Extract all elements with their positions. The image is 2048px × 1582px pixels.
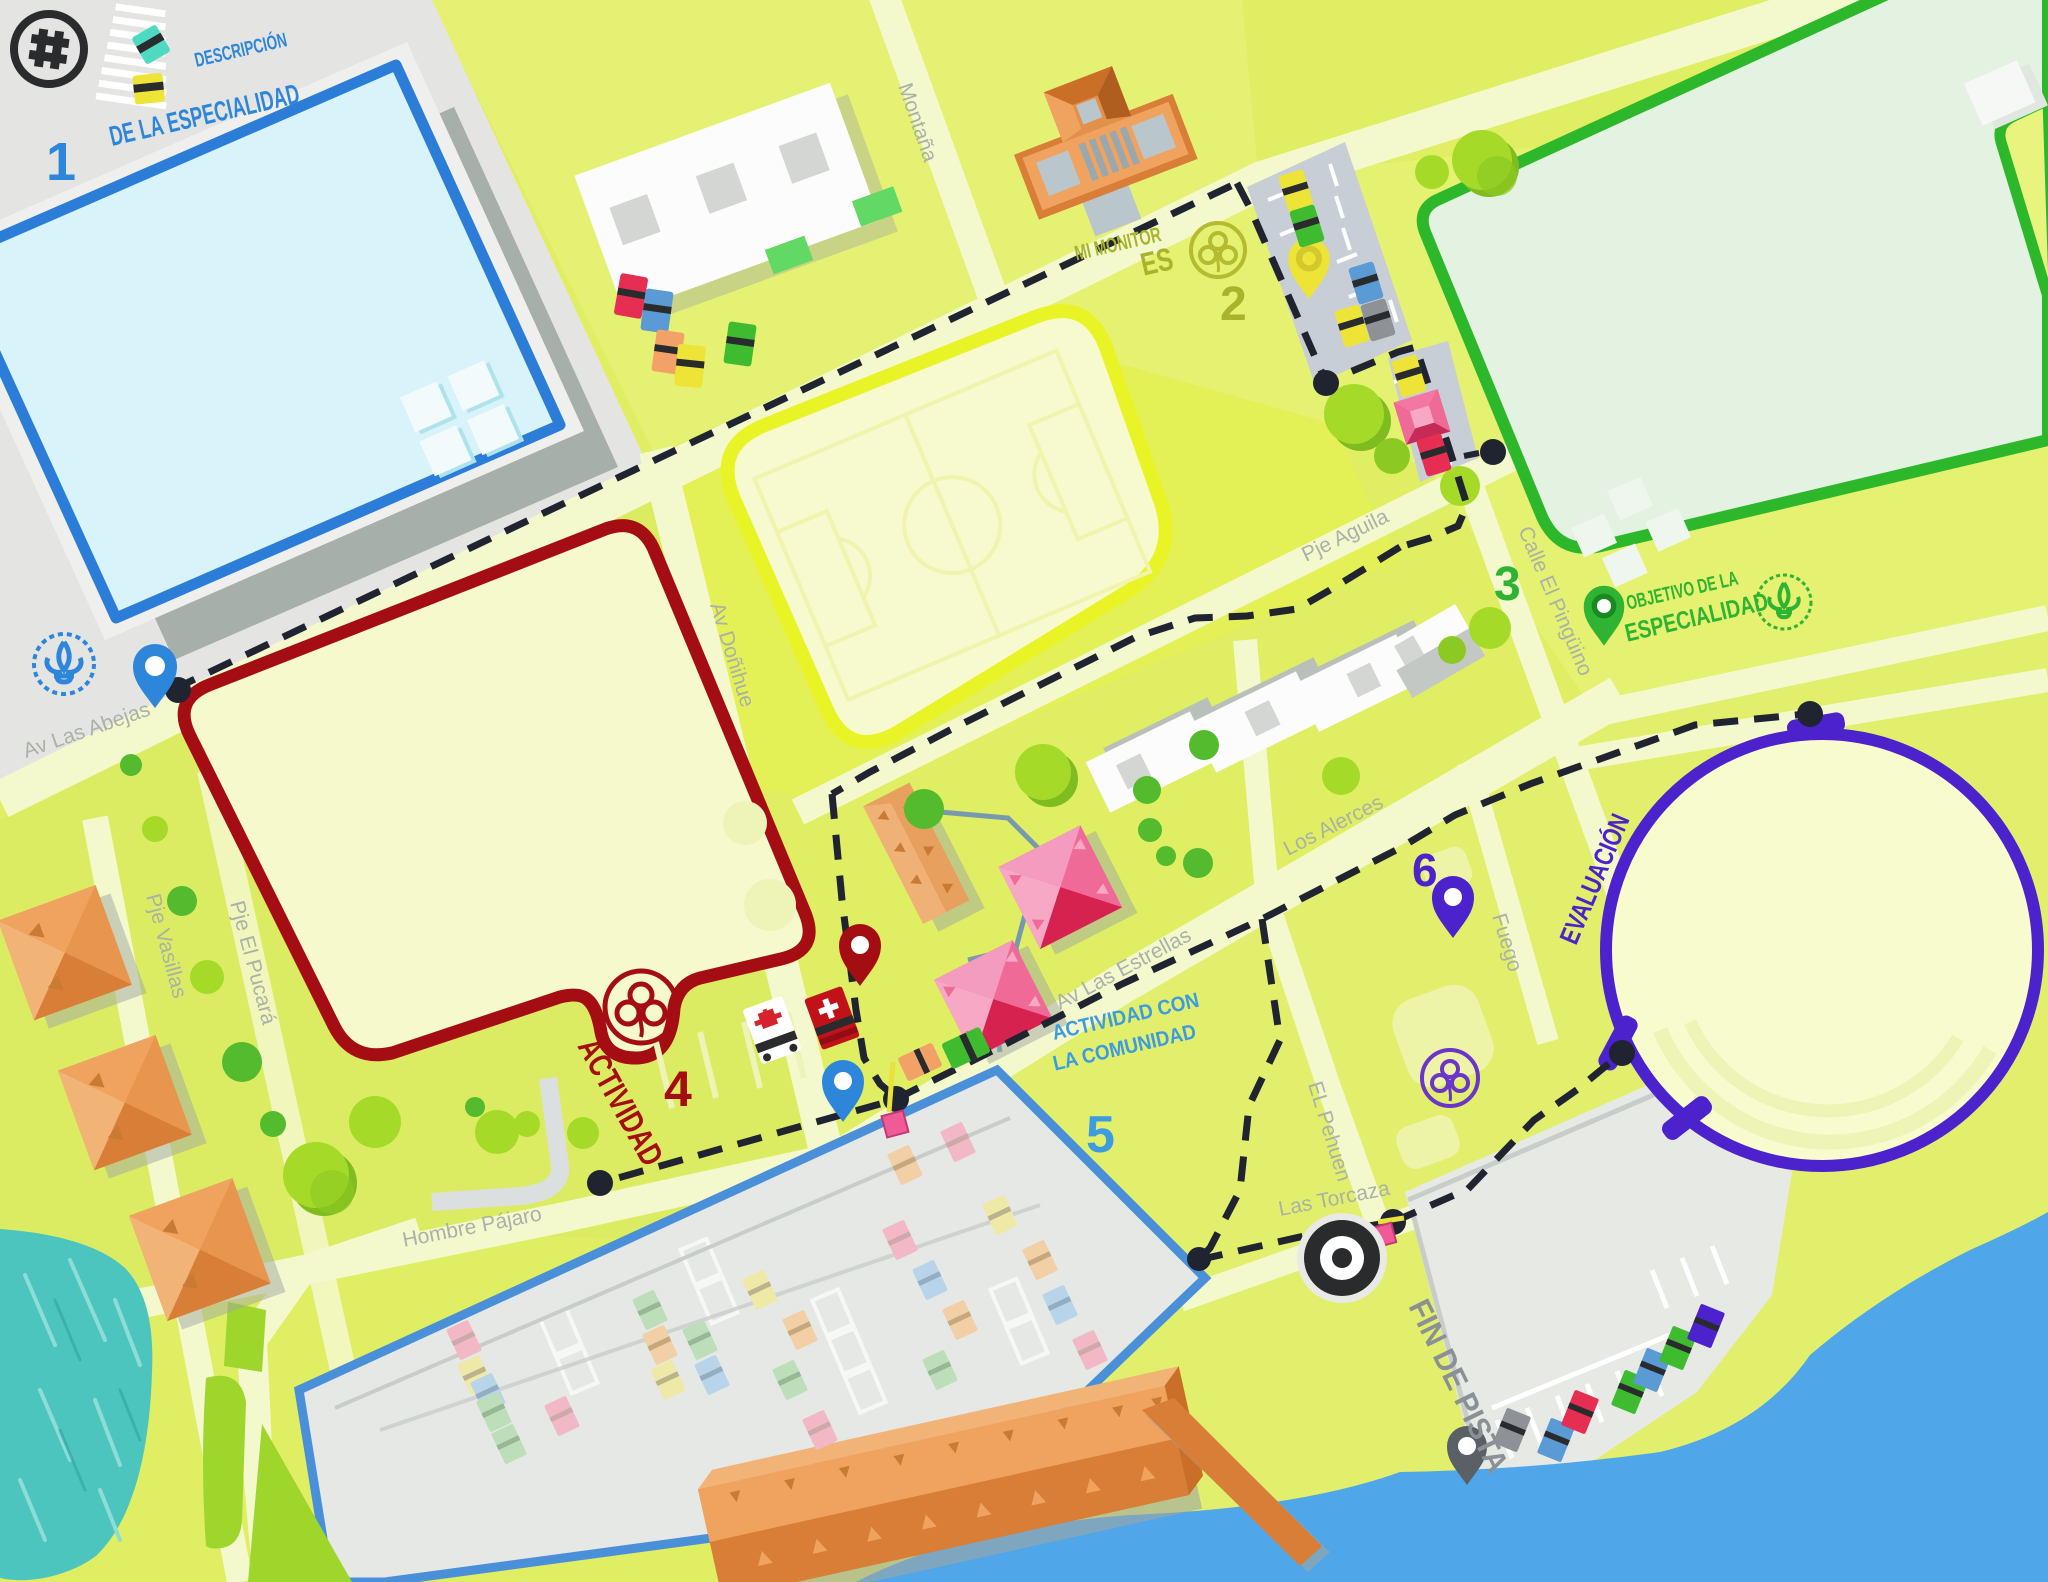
- svg-text:3: 3: [1494, 558, 1521, 611]
- svg-text:1: 1: [46, 132, 76, 192]
- svg-text:5: 5: [1086, 1106, 1115, 1164]
- svg-text:2: 2: [1220, 278, 1247, 331]
- svg-text:4: 4: [664, 1061, 692, 1117]
- svg-text:6: 6: [1412, 844, 1438, 896]
